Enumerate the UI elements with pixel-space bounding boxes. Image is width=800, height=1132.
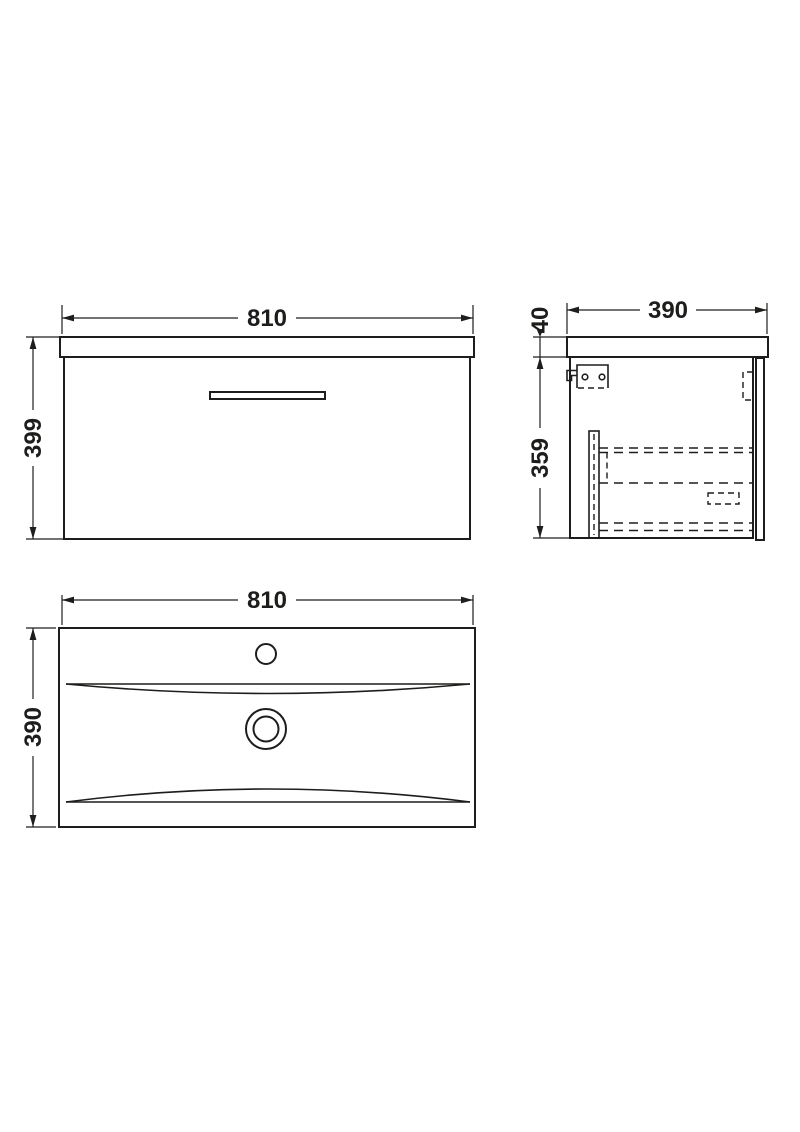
technical-drawing-page: 810 399 390 [0, 0, 800, 1132]
front-height-dimension-label: 399 [20, 418, 47, 458]
basin-depth-arrow-top [30, 628, 37, 640]
front-cabinet-body [64, 357, 470, 539]
side-height-arrow-top [537, 357, 544, 369]
front-width-arrow-left [62, 315, 74, 322]
side-worktop [567, 337, 768, 357]
basin-width-arrow-left [62, 597, 74, 604]
front-worktop [60, 337, 474, 357]
basin-waste-inner-ring [254, 717, 279, 742]
basin-front-slope-curve [66, 789, 470, 802]
side-depth-dimension-label: 390 [648, 297, 688, 324]
basin-tap-hole [256, 644, 276, 664]
side-depth-arrow-left [567, 307, 579, 314]
side-drawer-front-panel [756, 358, 764, 540]
basin-depth-arrow-bottom [30, 815, 37, 827]
side-height-arrow-bottom [537, 526, 544, 538]
side-worktop-dimension-label: 40 [527, 307, 554, 334]
side-hanging-rail-hidden-line [743, 372, 753, 400]
basin-width-arrow-right [461, 597, 473, 604]
front-elevation-view: 810 399 [20, 305, 474, 539]
side-bracket-screw-hole-right [599, 374, 605, 380]
front-width-dimension-label: 810 [247, 305, 287, 332]
front-width-arrow-right [461, 315, 473, 322]
front-height-arrow-bottom [30, 527, 37, 539]
basin-back-slope-curve [66, 684, 470, 694]
basin-waste-outer-ring [246, 709, 286, 749]
side-depth-arrow-right [755, 307, 767, 314]
side-height-dimension-label: 359 [527, 438, 554, 478]
basin-plan-view: 810 390 [20, 587, 475, 827]
side-wall-bracket-hook [567, 371, 577, 381]
front-drawer-handle [210, 392, 325, 399]
side-drawer-handle-hidden [708, 493, 739, 504]
vanity-unit-technical-drawing: 810 399 390 [0, 0, 800, 1132]
basin-outline [59, 628, 475, 827]
side-elevation-view: 390 40 359 [527, 297, 768, 540]
side-bracket-screw-hole-left [582, 374, 588, 380]
front-height-arrow-top [30, 337, 37, 349]
basin-width-dimension-label: 810 [247, 587, 287, 614]
basin-depth-dimension-label: 390 [20, 707, 47, 747]
